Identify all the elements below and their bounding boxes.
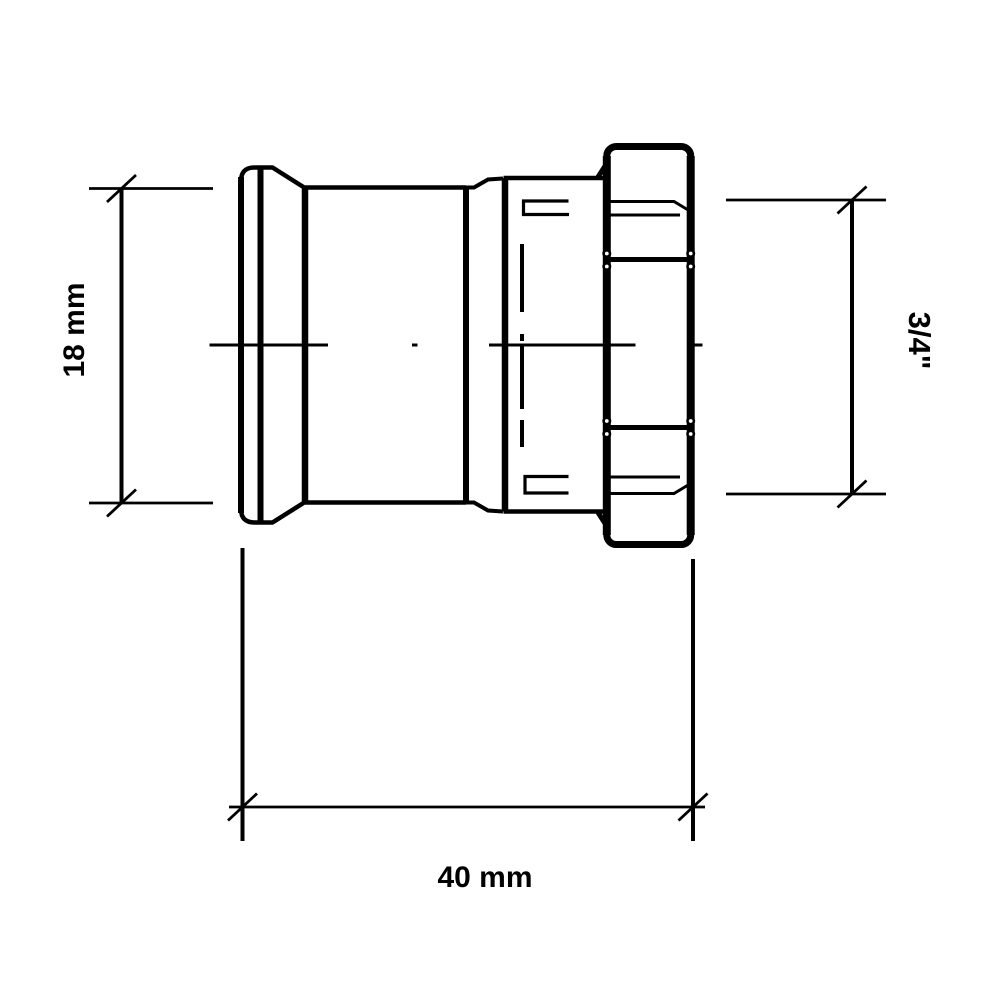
svg-text:18 mm: 18 mm [58, 282, 91, 377]
svg-text:40 mm: 40 mm [437, 861, 532, 894]
svg-text:3/4": 3/4" [902, 312, 937, 370]
